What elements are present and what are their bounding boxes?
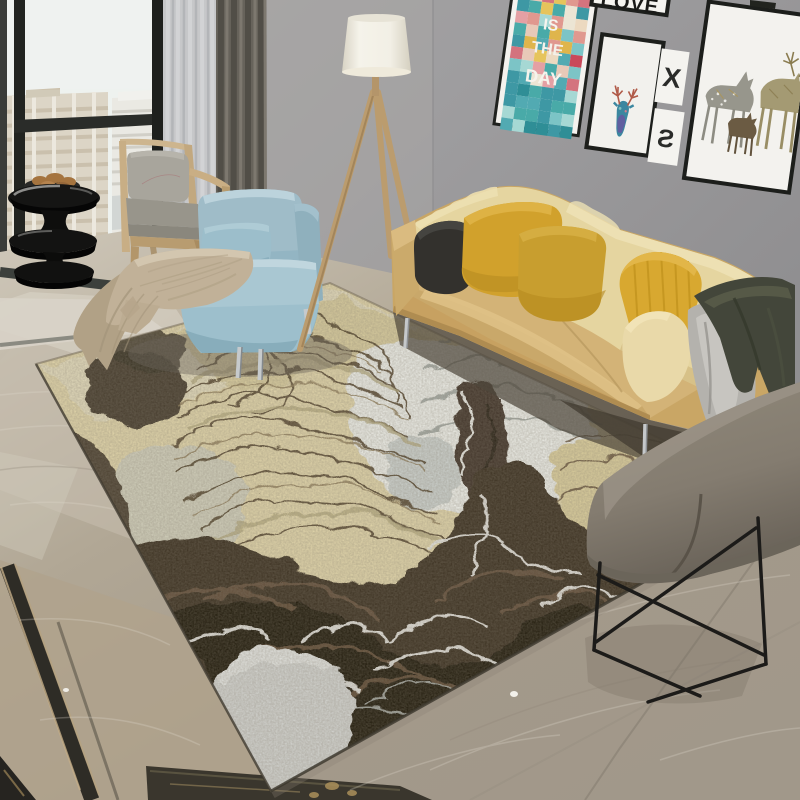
svg-text:IS: IS	[542, 16, 560, 35]
